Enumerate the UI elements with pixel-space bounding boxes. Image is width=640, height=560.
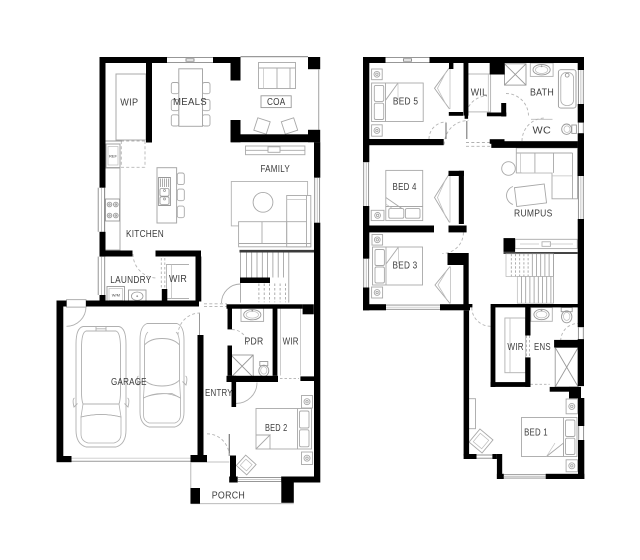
svg-text:MEALS: MEALS bbox=[173, 97, 207, 108]
svg-text:BED 2: BED 2 bbox=[265, 423, 288, 434]
svg-text:WIP: WIP bbox=[120, 98, 138, 109]
svg-text:ENTRY: ENTRY bbox=[205, 388, 233, 399]
svg-text:RUMPUS: RUMPUS bbox=[514, 208, 553, 219]
svg-text:WC: WC bbox=[533, 126, 552, 137]
svg-text:W/M: W/M bbox=[112, 293, 120, 298]
svg-text:WIR: WIR bbox=[507, 342, 524, 353]
svg-text:BED 4: BED 4 bbox=[393, 182, 417, 193]
svg-text:LAUNDRY: LAUNDRY bbox=[110, 275, 151, 286]
svg-text:PORCH: PORCH bbox=[212, 491, 245, 502]
svg-text:BED 1: BED 1 bbox=[524, 428, 548, 439]
svg-text:ENS: ENS bbox=[534, 342, 551, 353]
svg-text:BED 5: BED 5 bbox=[393, 97, 419, 108]
svg-text:WIL: WIL bbox=[471, 87, 488, 98]
svg-text:BED 3: BED 3 bbox=[393, 260, 418, 271]
svg-text:WIR: WIR bbox=[169, 274, 187, 285]
svg-text:KITCHEN: KITCHEN bbox=[126, 229, 164, 240]
svg-text:GARAGE: GARAGE bbox=[111, 377, 147, 388]
svg-text:WIR: WIR bbox=[283, 337, 299, 348]
svg-text:COA: COA bbox=[267, 97, 286, 108]
svg-text:BATH: BATH bbox=[530, 87, 554, 98]
svg-text:PDR: PDR bbox=[245, 337, 264, 348]
svg-text:FAMILY: FAMILY bbox=[260, 164, 290, 175]
svg-text:REF: REF bbox=[109, 154, 118, 159]
